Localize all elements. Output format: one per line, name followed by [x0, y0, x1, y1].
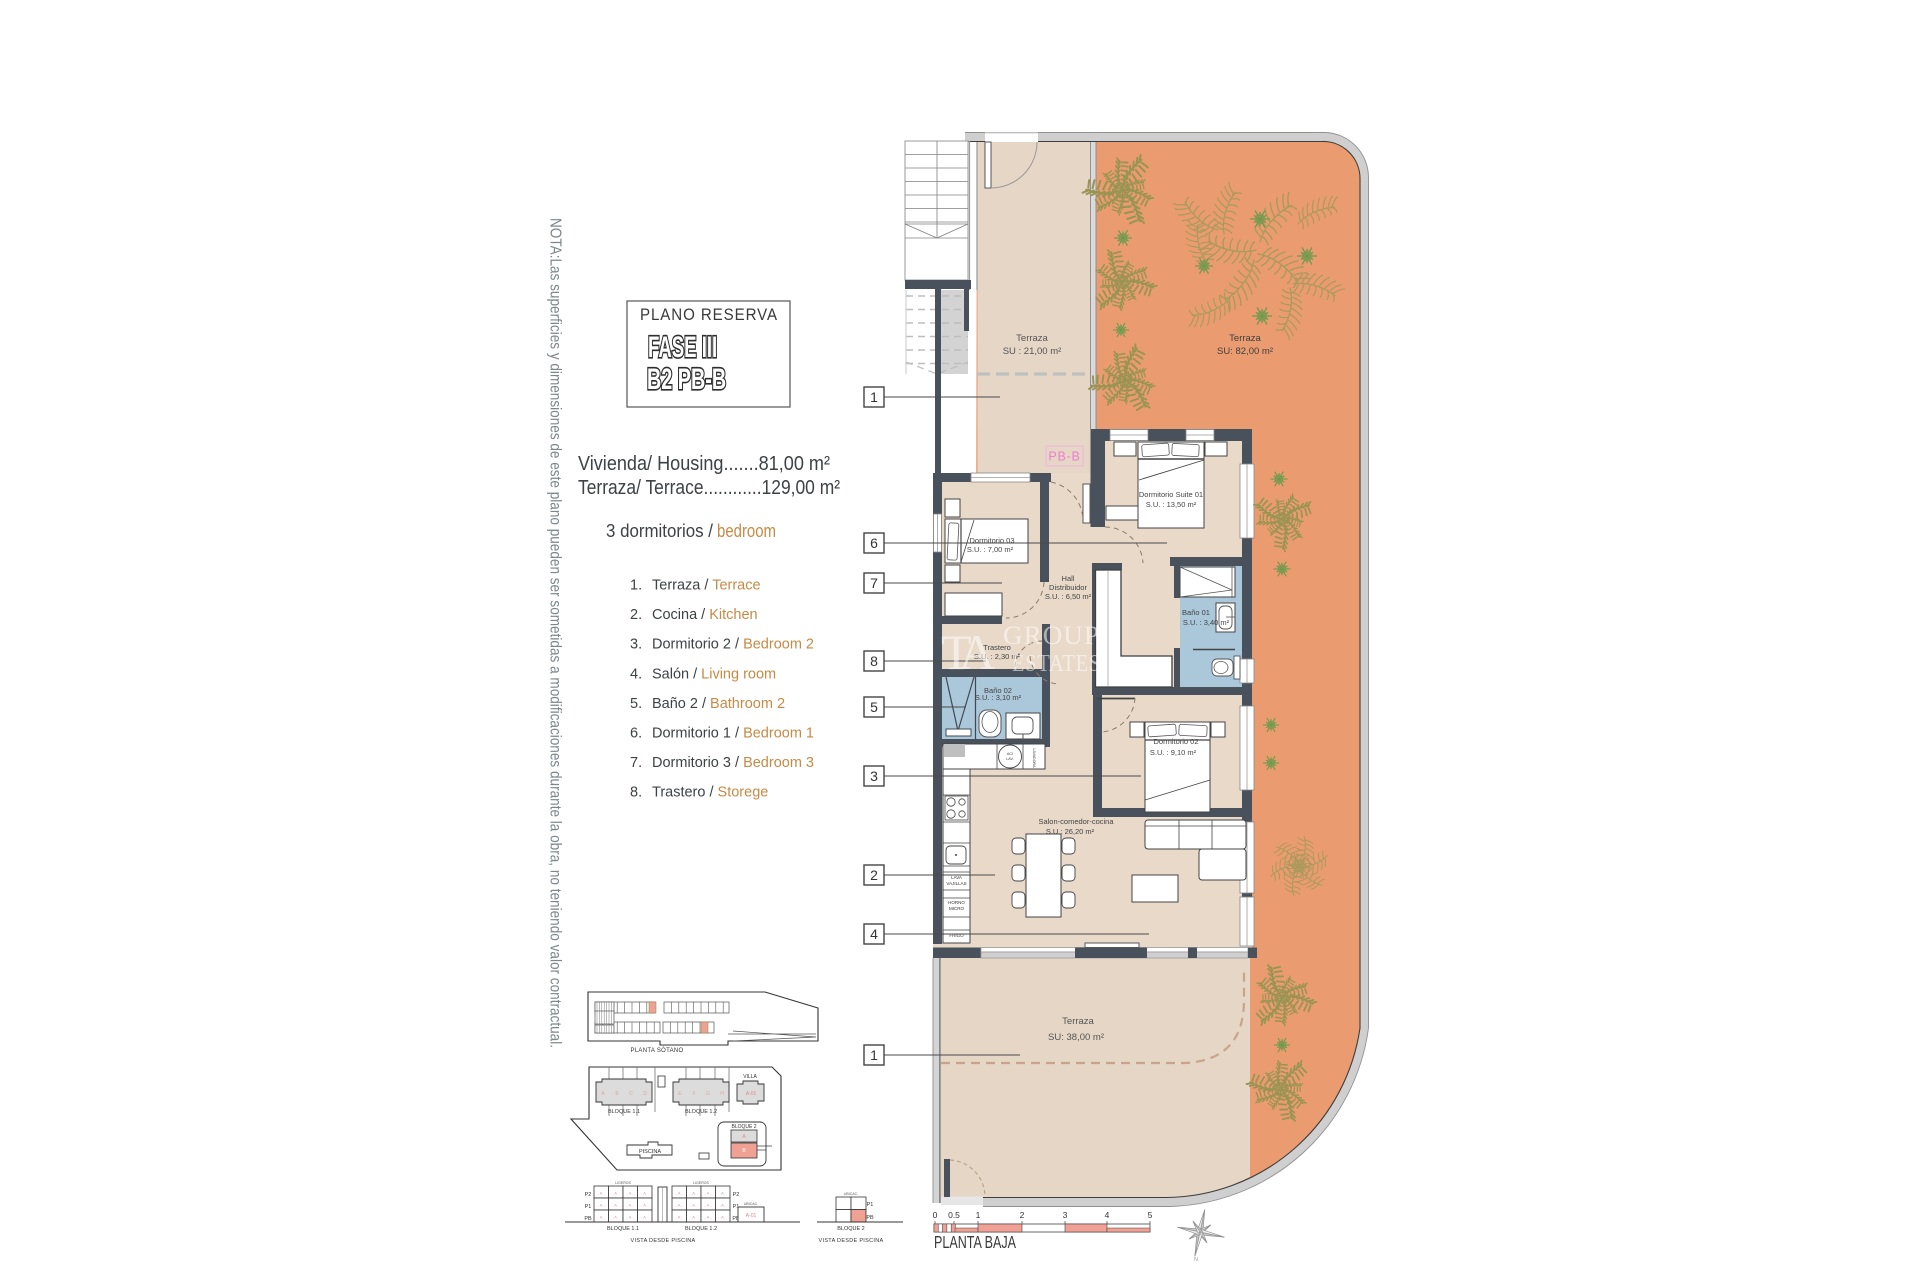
- svg-text:HORNO: HORNO: [948, 900, 965, 905]
- svg-text:7: 7: [870, 575, 878, 591]
- svg-text:D: D: [643, 1091, 647, 1097]
- svg-text:BLOQUE 1.2: BLOQUE 1.2: [685, 1109, 717, 1115]
- svg-text:VISTA DESDE PISCINA: VISTA DESDE PISCINA: [631, 1238, 696, 1244]
- svg-text:1: 1: [976, 1210, 981, 1220]
- svg-text:..A..: ..A..: [626, 1191, 635, 1196]
- svg-text:..A..: ..A..: [640, 1191, 649, 1196]
- svg-text:N: N: [1194, 1257, 1198, 1263]
- svg-text:..A..: ..A..: [718, 1191, 727, 1196]
- svg-text:..A..: ..A..: [675, 1191, 684, 1196]
- svg-text:3 dormitorios /: 3 dormitorios /: [606, 521, 713, 541]
- svg-text:G: G: [706, 1091, 710, 1097]
- svg-text:..A..: ..A..: [704, 1203, 713, 1208]
- svg-text:Dormitorio 2 / Bedroom 2: Dormitorio 2 / Bedroom 2: [652, 637, 814, 653]
- svg-text:Vivienda/ Housing.......81,00: Vivienda/ Housing.......81,00 m²: [578, 453, 830, 475]
- svg-text:..A..: ..A..: [675, 1203, 684, 1208]
- svg-text:SU: 82,00 m²: SU: 82,00 m²: [1217, 346, 1273, 357]
- svg-text:4: 4: [1105, 1210, 1110, 1220]
- svg-text:..A..: ..A..: [626, 1203, 635, 1208]
- svg-text:PB: PB: [866, 1215, 874, 1221]
- svg-text:Terraza/ Terrace............12: Terraza/ Terrace............129,00 m²: [578, 477, 840, 499]
- svg-text:S.U. : 3,40 m²: S.U. : 3,40 m²: [1183, 618, 1230, 627]
- svg-text:S.U : 26,20 m²: S.U : 26,20 m²: [1046, 827, 1095, 836]
- svg-text:3: 3: [870, 768, 878, 784]
- svg-text:Baño 2 / Bathroom 2: Baño 2 / Bathroom 2: [652, 696, 785, 712]
- svg-text:Terraza / Terrace: Terraza / Terrace: [652, 578, 761, 594]
- svg-text:Baño 01: Baño 01: [1182, 608, 1210, 617]
- svg-text:A: A: [959, 624, 995, 680]
- svg-text:PB-B: PB-B: [1048, 450, 1080, 464]
- svg-text:7.: 7.: [630, 755, 642, 771]
- svg-text:0: 0: [933, 1210, 938, 1220]
- svg-text:LIGEROS: LIGEROS: [615, 1181, 631, 1185]
- svg-text:..A..: ..A..: [597, 1215, 606, 1220]
- svg-text:BLOQUE 1.1: BLOQUE 1.1: [607, 1226, 639, 1232]
- svg-text:UBICAC.: UBICAC.: [844, 1192, 858, 1196]
- svg-text:..A..: ..A..: [597, 1191, 606, 1196]
- svg-text:1.: 1.: [630, 578, 642, 594]
- svg-text:..A..: ..A..: [718, 1215, 727, 1220]
- svg-text:2.: 2.: [630, 607, 642, 623]
- svg-text:UBICAC.: UBICAC.: [744, 1202, 758, 1206]
- svg-text:NOTA:Las superficies y dimensi: NOTA:Las superficies y dimensiones de es…: [547, 218, 564, 1048]
- svg-text:..A..: ..A..: [718, 1203, 727, 1208]
- svg-text:P2: P2: [585, 1192, 592, 1198]
- svg-text:4.: 4.: [630, 666, 642, 682]
- svg-text:BLOQUE 2: BLOQUE 2: [837, 1226, 865, 1232]
- svg-text:SU : 21,00 m²: SU : 21,00 m²: [1003, 346, 1062, 357]
- svg-text:Dormitorio Suite 01: Dormitorio Suite 01: [1139, 490, 1203, 499]
- svg-text:F: F: [692, 1091, 695, 1097]
- svg-text:Terraza: Terraza: [1062, 1016, 1094, 1027]
- svg-text:PLANO RESERVA: PLANO RESERVA: [640, 306, 778, 324]
- svg-text:VAJILLAS: VAJILLAS: [946, 881, 966, 886]
- svg-text:BLOQUE 1.2: BLOQUE 1.2: [685, 1226, 717, 1232]
- svg-text:Salón / Living room: Salón / Living room: [652, 666, 776, 682]
- svg-text:A-01: A-01: [746, 1213, 757, 1219]
- svg-text:5: 5: [1148, 1210, 1153, 1220]
- svg-text:..A..: ..A..: [611, 1191, 620, 1196]
- svg-text:..A..: ..A..: [640, 1203, 649, 1208]
- svg-text:B2 PB-B: B2 PB-B: [647, 363, 726, 396]
- svg-text:Dormitorio 02: Dormitorio 02: [1153, 737, 1198, 746]
- svg-text:3.: 3.: [630, 637, 642, 653]
- svg-text:S.U. : 3,10 m²: S.U. : 3,10 m²: [975, 693, 1022, 702]
- svg-text:ESTATES: ESTATES: [1012, 651, 1101, 677]
- svg-text:..A..: ..A..: [611, 1215, 620, 1220]
- svg-text:BLOQUE 2: BLOQUE 2: [731, 1124, 756, 1130]
- svg-text:..A..: ..A..: [689, 1191, 698, 1196]
- svg-text:Cocina / Kitchen: Cocina / Kitchen: [652, 607, 758, 623]
- svg-text:Trastero / Storege: Trastero / Storege: [652, 785, 768, 801]
- svg-text:..A..: ..A..: [689, 1215, 698, 1220]
- svg-text:Dormitorio 1 / Bedroom 1: Dormitorio 1 / Bedroom 1: [652, 726, 814, 742]
- svg-text:Dormitorio 3 / Bedroom 3: Dormitorio 3 / Bedroom 3: [652, 755, 814, 771]
- svg-text:3: 3: [1063, 1210, 1068, 1220]
- svg-text:6.: 6.: [630, 726, 642, 742]
- svg-text:Terraza: Terraza: [1229, 333, 1261, 344]
- svg-text:2: 2: [870, 867, 878, 883]
- svg-text:VISTA DESDE PISCINA: VISTA DESDE PISCINA: [819, 1238, 884, 1244]
- svg-text:1: 1: [870, 389, 878, 405]
- svg-text:LAVADORA: LAVADORA: [1032, 748, 1036, 768]
- svg-text:bedroom: bedroom: [717, 521, 776, 541]
- svg-text:..A..: ..A..: [704, 1215, 713, 1220]
- svg-text:Salon-comedor-cocina: Salon-comedor-cocina: [1038, 817, 1114, 826]
- svg-text:..A..: ..A..: [626, 1215, 635, 1220]
- svg-text:VILLA: VILLA: [743, 1074, 757, 1080]
- svg-text:LAV.: LAV.: [1006, 757, 1014, 761]
- svg-text:LAVA: LAVA: [951, 875, 962, 880]
- svg-text:5.: 5.: [630, 696, 642, 712]
- svg-text:6: 6: [870, 535, 878, 551]
- svg-text:C: C: [629, 1091, 633, 1097]
- svg-text:P1: P1: [867, 1202, 874, 1208]
- svg-text:PLANTA BAJA: PLANTA BAJA: [934, 1232, 1016, 1252]
- svg-text:8: 8: [870, 653, 878, 669]
- svg-text:5: 5: [870, 699, 878, 715]
- svg-text:..A..: ..A..: [611, 1203, 620, 1208]
- svg-text:Dormitorio 03: Dormitorio 03: [969, 536, 1014, 545]
- svg-text:H: H: [720, 1091, 724, 1097]
- svg-text:..A..: ..A..: [597, 1203, 606, 1208]
- svg-text:P2: P2: [733, 1192, 740, 1198]
- svg-text:A-01: A-01: [746, 1091, 757, 1097]
- svg-text:PISCINA: PISCINA: [639, 1149, 661, 1155]
- svg-text:S.U. : 6,50 m²: S.U. : 6,50 m²: [1045, 592, 1092, 601]
- svg-text:..A..: ..A..: [689, 1203, 698, 1208]
- svg-text:0.5: 0.5: [948, 1210, 960, 1220]
- svg-text:8.: 8.: [630, 785, 642, 801]
- svg-text:S.U. : 13,50 m²: S.U. : 13,50 m²: [1146, 500, 1197, 509]
- svg-text:Distribuidor: Distribuidor: [1049, 583, 1087, 592]
- svg-text:MICRO: MICRO: [949, 906, 964, 911]
- svg-text:S.U. : 9,10 m²: S.U. : 9,10 m²: [1150, 748, 1197, 757]
- svg-text:Terraza: Terraza: [1016, 333, 1048, 344]
- svg-text:SU: 38,00 m²: SU: 38,00 m²: [1048, 1032, 1104, 1043]
- svg-text:LIGEROS: LIGEROS: [693, 1181, 709, 1185]
- svg-text:..A..: ..A..: [704, 1191, 713, 1196]
- svg-text:PLANTA SÓTANO: PLANTA SÓTANO: [630, 1047, 683, 1054]
- svg-text:..A..: ..A..: [640, 1215, 649, 1220]
- svg-text:P1: P1: [585, 1204, 592, 1210]
- svg-text:S.U. : 7,00 m²: S.U. : 7,00 m²: [967, 545, 1014, 554]
- svg-text:2: 2: [1020, 1210, 1025, 1220]
- svg-text:GROUP: GROUP: [1003, 621, 1100, 650]
- svg-text:4: 4: [870, 926, 878, 942]
- svg-text:BLOQUE 1.1: BLOQUE 1.1: [608, 1109, 640, 1115]
- svg-text:Hall: Hall: [1062, 574, 1075, 583]
- svg-text:1: 1: [870, 1047, 878, 1063]
- svg-text:ACI: ACI: [1007, 752, 1013, 756]
- svg-text:FASE III: FASE III: [648, 331, 717, 365]
- svg-text:PB: PB: [584, 1216, 592, 1222]
- svg-text:..A..: ..A..: [675, 1215, 684, 1220]
